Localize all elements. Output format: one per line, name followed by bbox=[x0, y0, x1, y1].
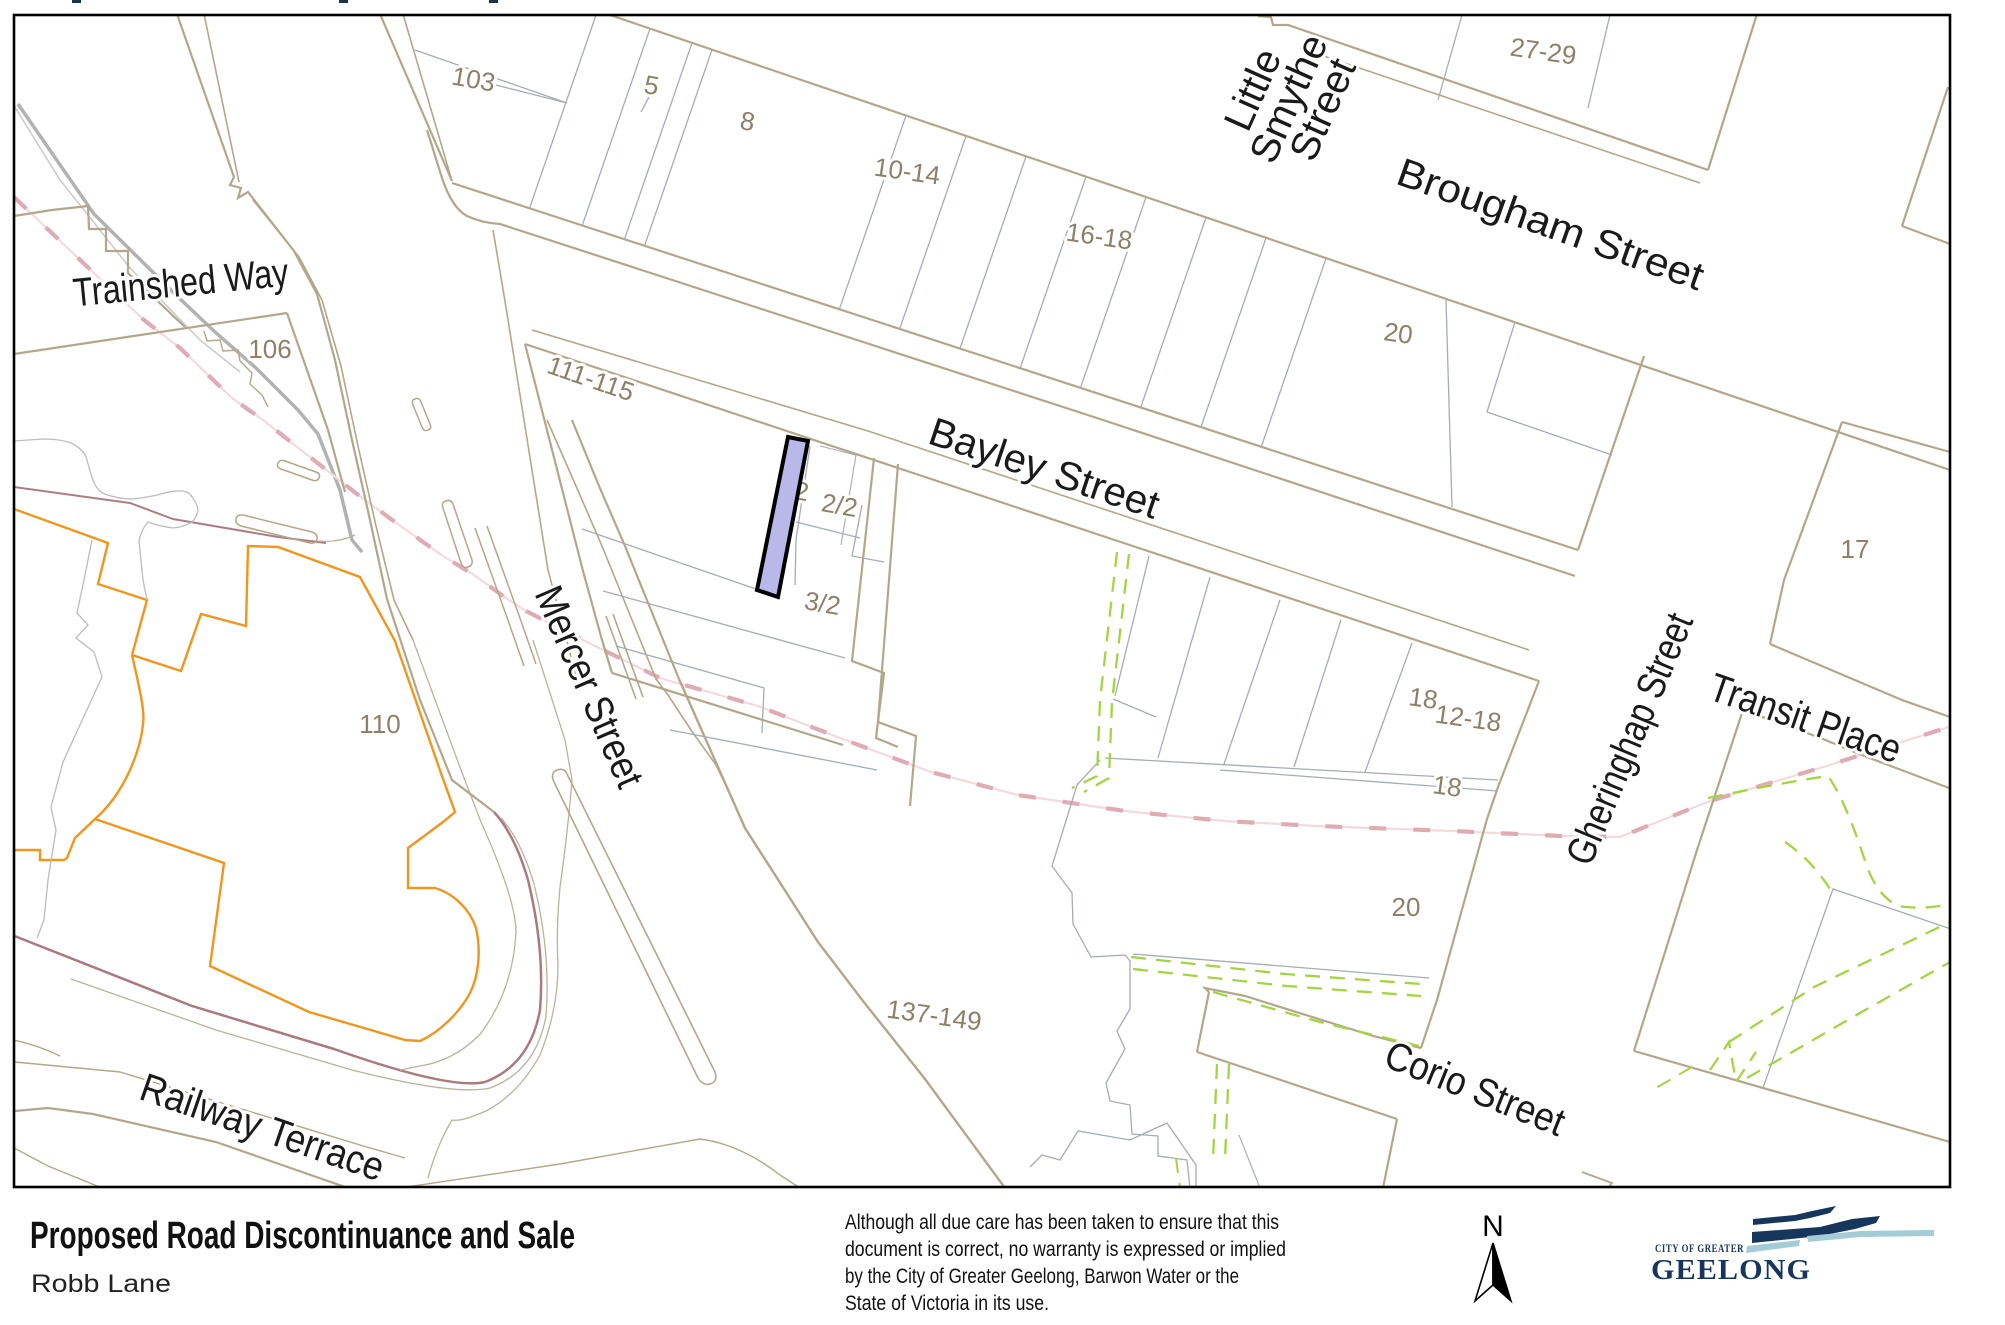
svg-text:Robb Lane: Robb Lane bbox=[31, 1270, 171, 1298]
svg-text:2/2: 2/2 bbox=[819, 487, 860, 523]
svg-text:17: 17 bbox=[1841, 534, 1870, 564]
svg-text:State of Victoria in its use.: State of Victoria in its use. bbox=[845, 1291, 1049, 1315]
svg-text:18: 18 bbox=[1407, 681, 1440, 715]
svg-text:GEELONG: GEELONG bbox=[1651, 1254, 1811, 1286]
svg-text:document is correct, no warran: document is correct, no warranty is expr… bbox=[845, 1237, 1286, 1261]
svg-text:Although all due care has been: Although all due care has been taken to … bbox=[845, 1210, 1279, 1234]
svg-text:N: N bbox=[1482, 1210, 1504, 1243]
svg-text:3/2: 3/2 bbox=[802, 585, 843, 621]
svg-text:106: 106 bbox=[248, 334, 291, 364]
svg-text:Proposed Road Discontinuance a: Proposed Road Discontinuance and Sale bbox=[30, 1215, 575, 1257]
svg-text:20: 20 bbox=[1382, 316, 1415, 350]
svg-text:110: 110 bbox=[359, 709, 400, 739]
svg-text:CITY OF GREATER: CITY OF GREATER bbox=[1655, 1241, 1744, 1255]
svg-text:by the City of Greater Geelong: by the City of Greater Geelong, Barwon W… bbox=[845, 1264, 1239, 1288]
svg-text:18: 18 bbox=[1431, 769, 1464, 803]
svg-text:20: 20 bbox=[1392, 892, 1421, 922]
